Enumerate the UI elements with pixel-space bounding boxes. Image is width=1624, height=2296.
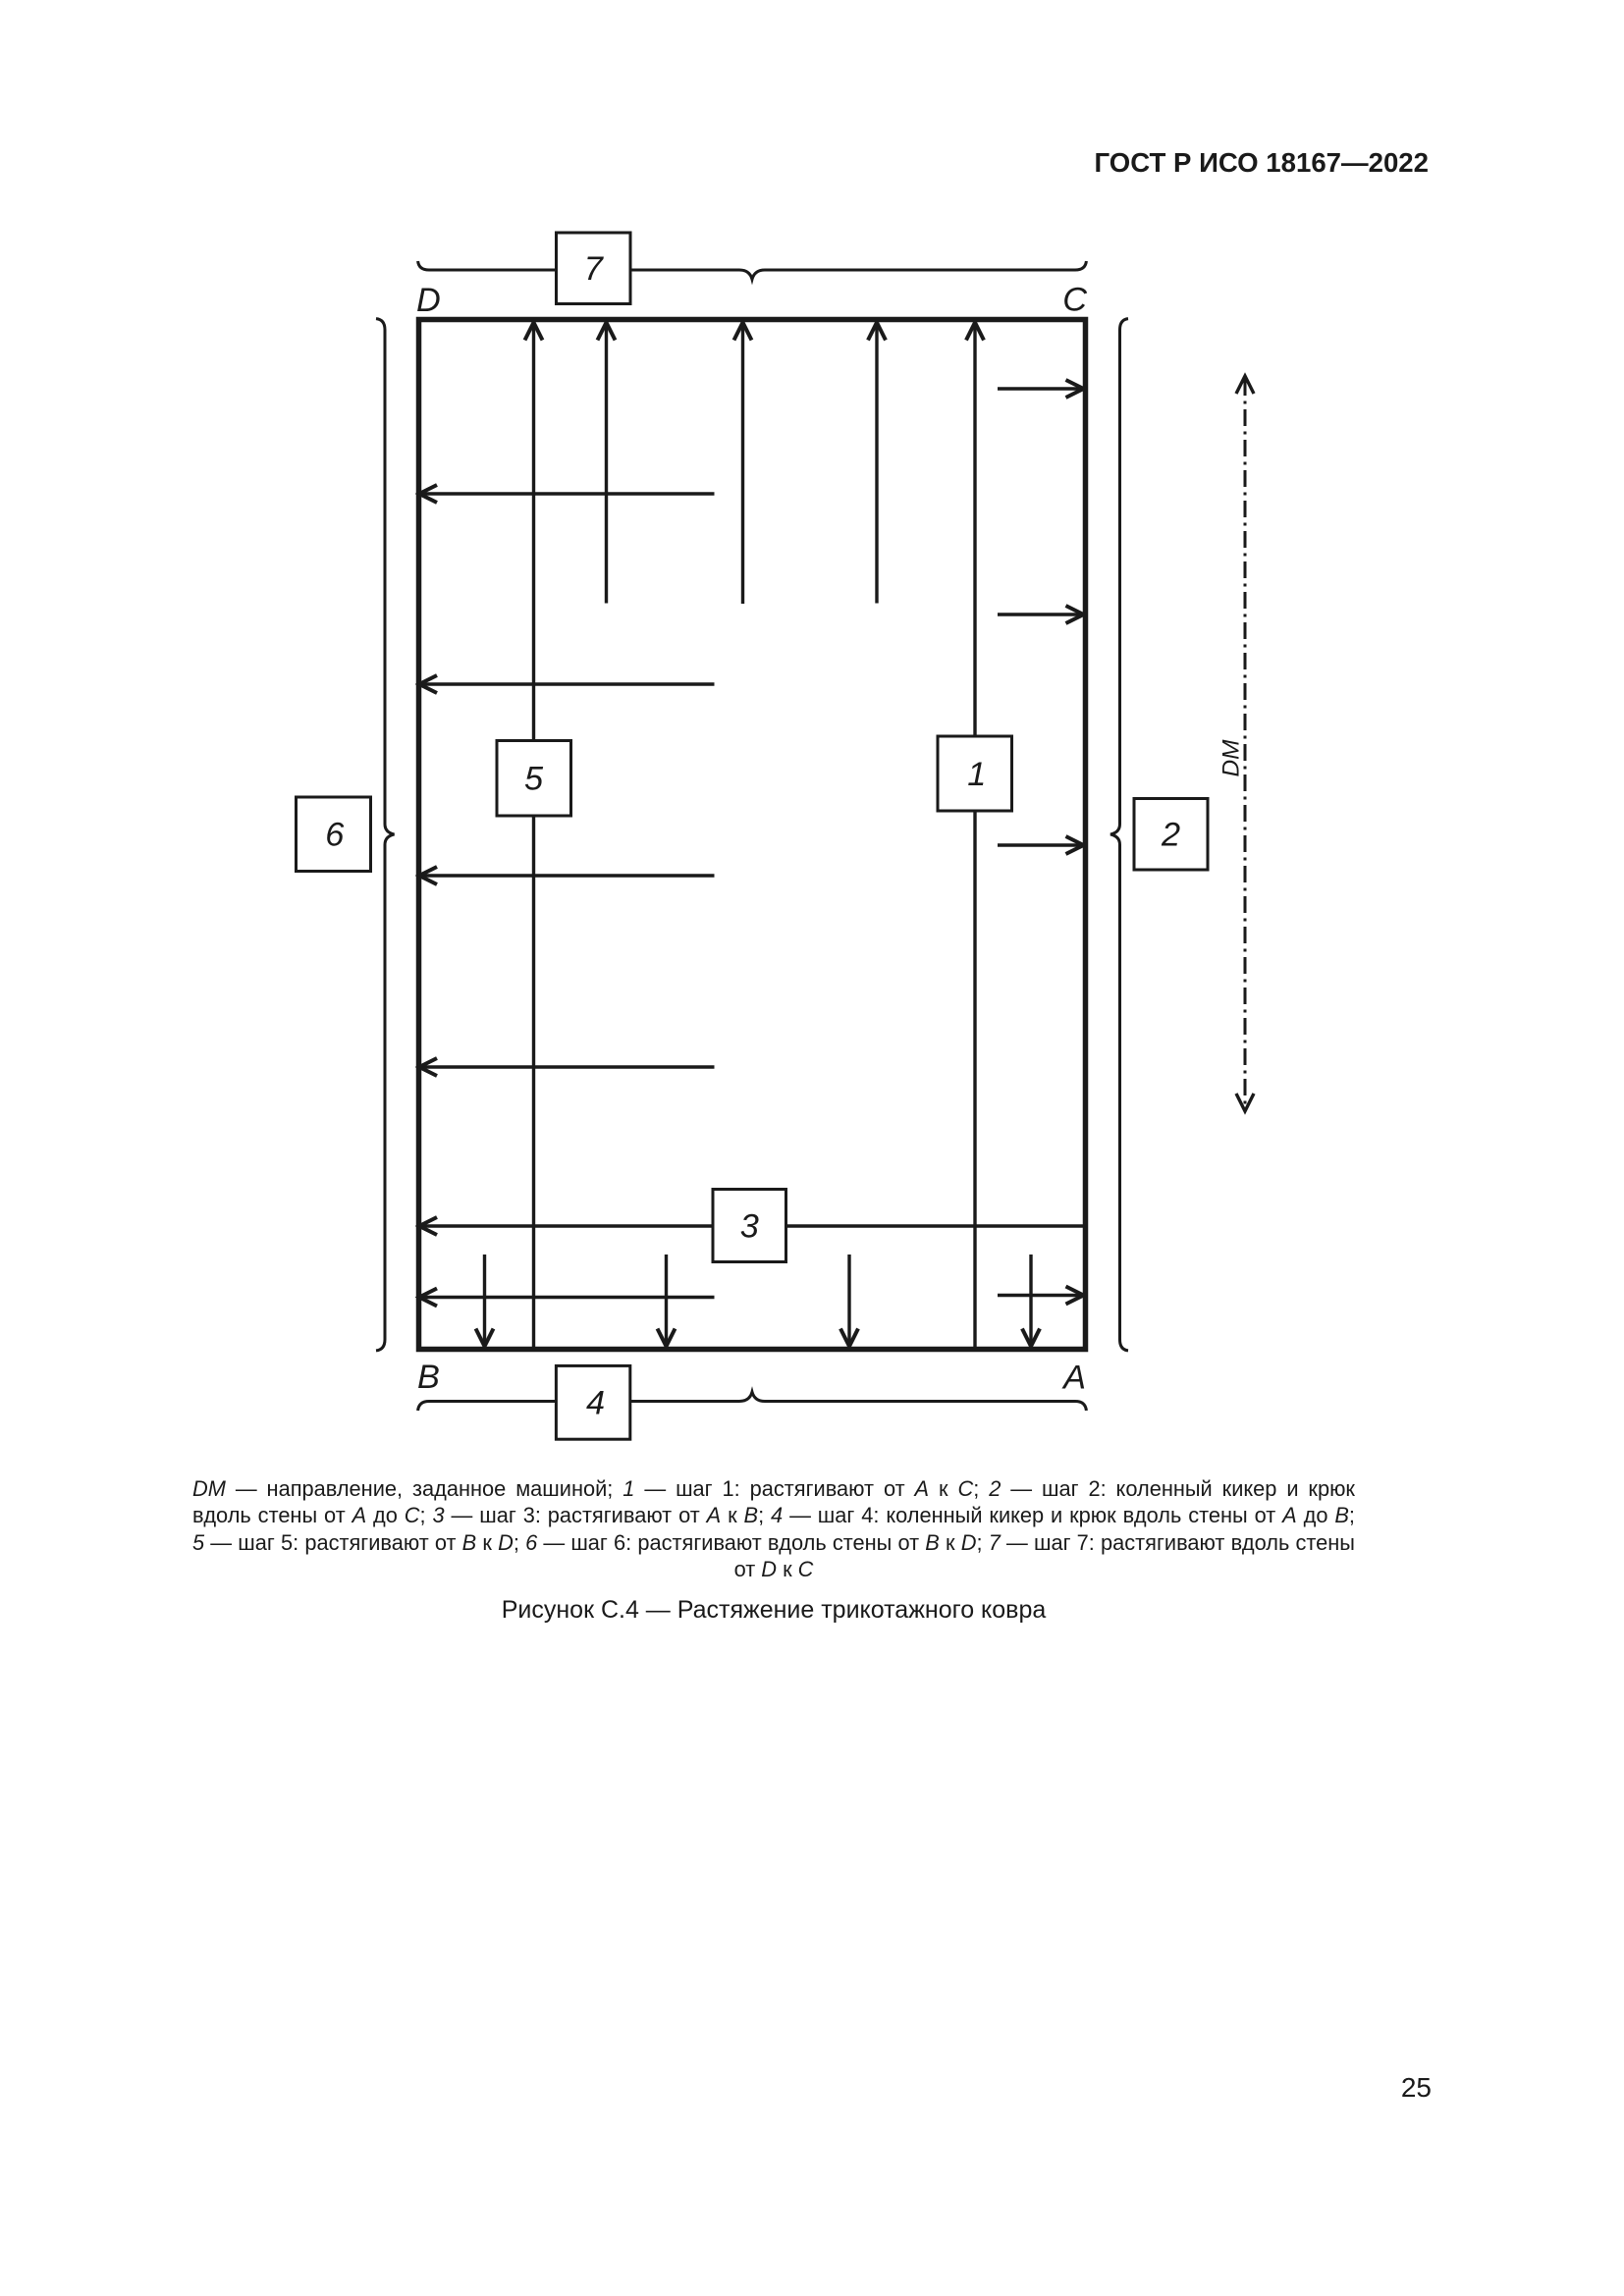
svg-text:C: C — [1062, 282, 1087, 319]
svg-text:5: 5 — [524, 761, 544, 798]
svg-text:6: 6 — [325, 817, 345, 854]
svg-text:2: 2 — [1161, 817, 1180, 854]
svg-text:3: 3 — [740, 1207, 759, 1245]
svg-text:7: 7 — [584, 250, 605, 288]
svg-text:A: A — [1061, 1360, 1086, 1397]
svg-text:DM: DM — [1218, 739, 1245, 777]
svg-text:D: D — [416, 282, 441, 319]
svg-text:1: 1 — [967, 756, 986, 793]
svg-text:4: 4 — [586, 1385, 605, 1422]
svg-text:B: B — [417, 1359, 440, 1396]
